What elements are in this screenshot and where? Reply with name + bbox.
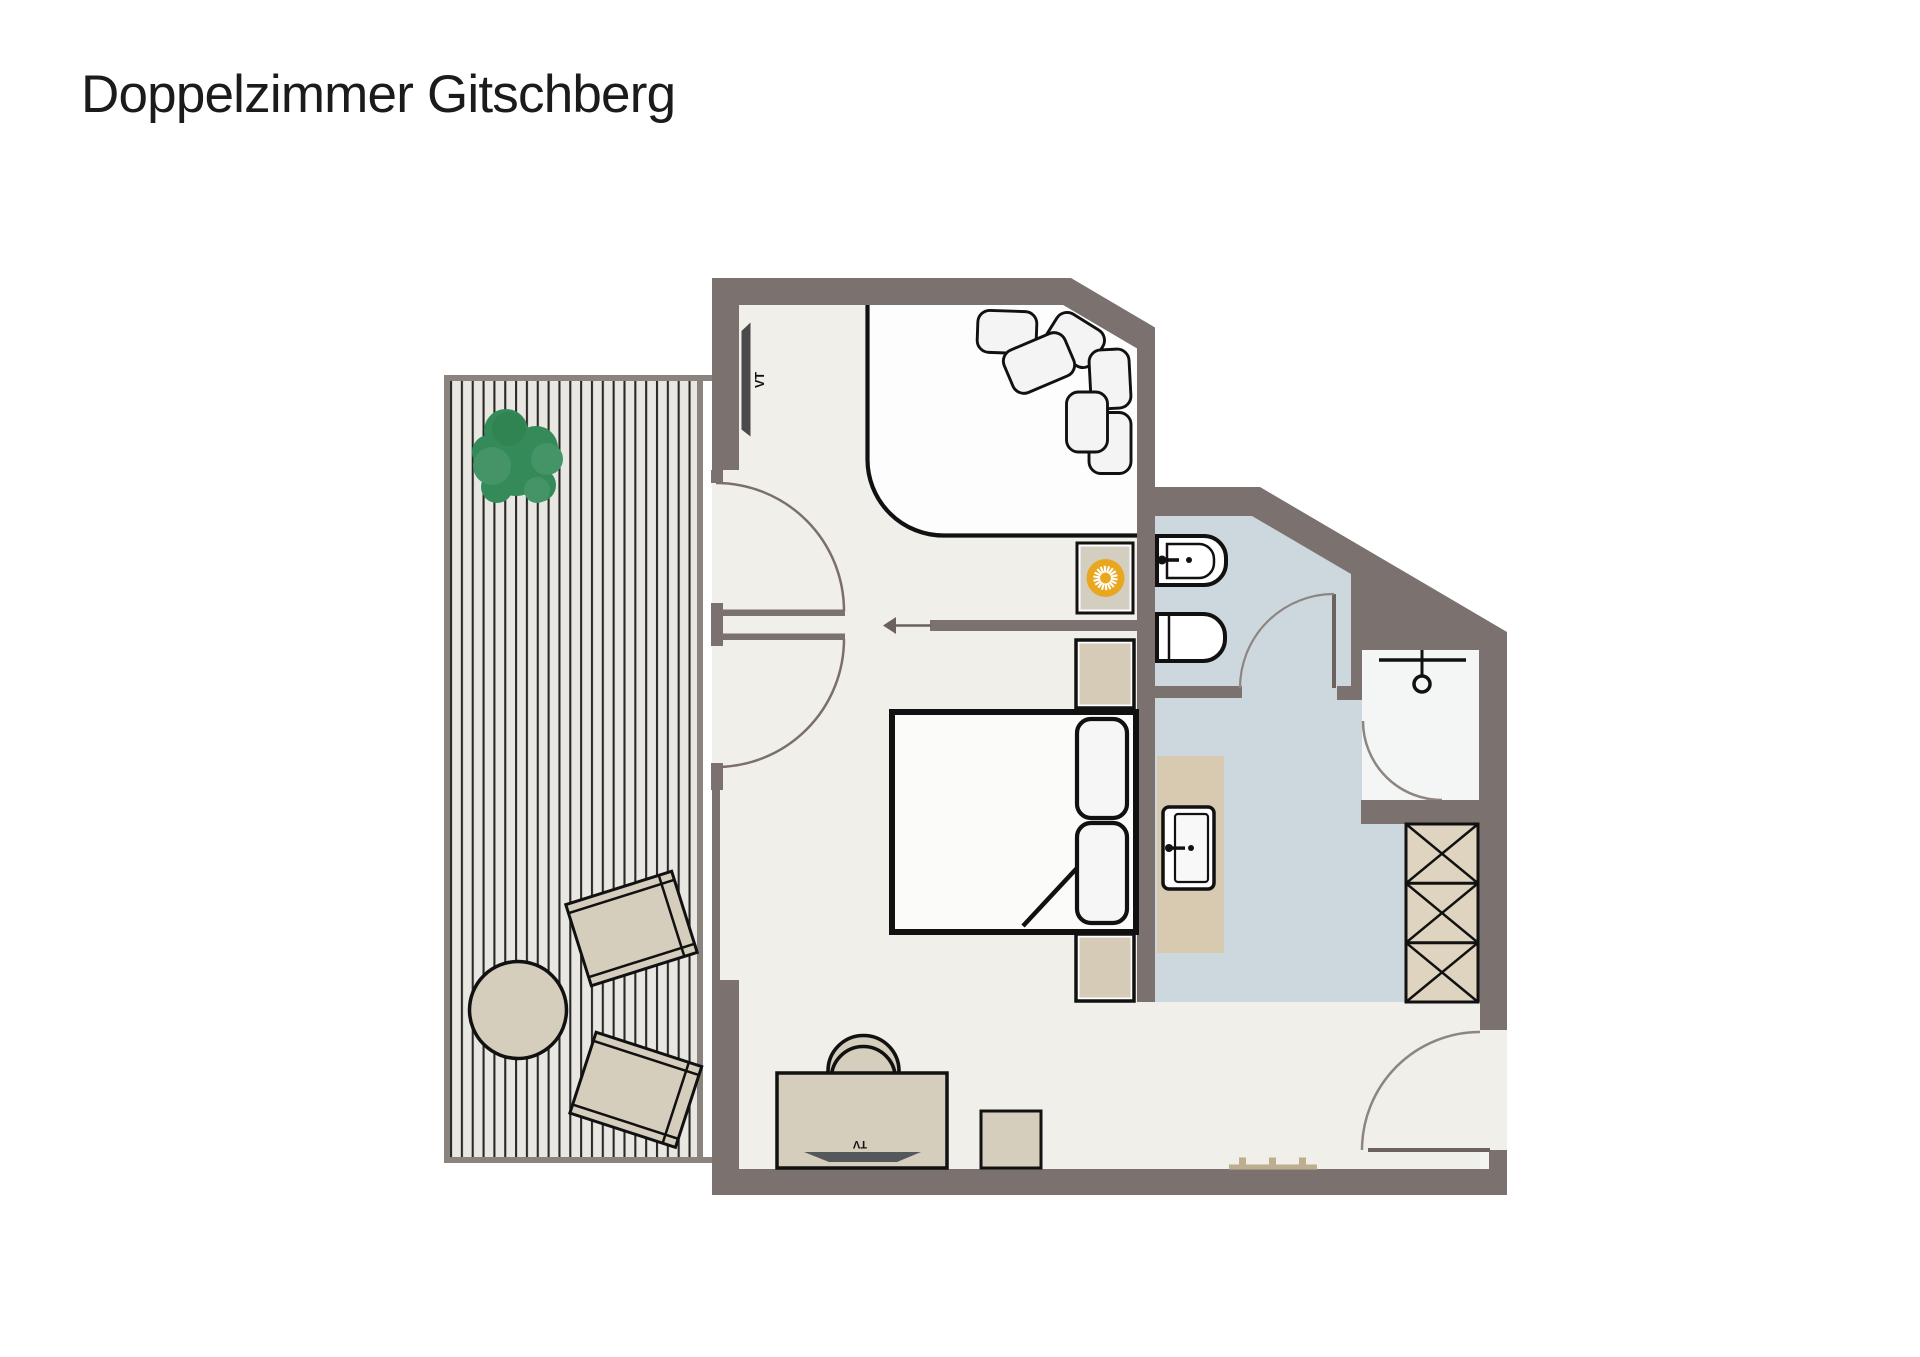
svg-text:Doppelzimmer Gitschberg: Doppelzimmer Gitschberg (81, 65, 675, 124)
svg-text:TV: TV (852, 1138, 867, 1150)
svg-text:VT: VT (753, 372, 767, 388)
